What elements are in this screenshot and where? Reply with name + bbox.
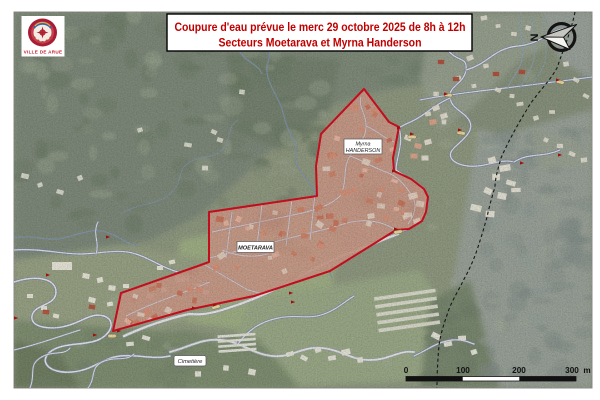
svg-text:MOETARAVA: MOETARAVA (238, 245, 273, 251)
svg-text:HANDERSON: HANDERSON (346, 148, 381, 154)
svg-text:Coupure d'eau prévue le merc 2: Coupure d'eau prévue le merc 29 octobre … (175, 20, 466, 34)
svg-text:0: 0 (404, 366, 409, 375)
svg-text:200: 200 (512, 366, 526, 375)
svg-text:300: 300 (565, 366, 579, 375)
svg-text:Cimetière: Cimetière (178, 359, 204, 365)
svg-text:Secteurs Moetarava et Myrna Ha: Secteurs Moetarava et Myrna Handerson (219, 36, 422, 50)
svg-text:N: N (529, 33, 541, 41)
svg-text:VILLE DE ARUE: VILLE DE ARUE (24, 50, 63, 55)
svg-text:Myrna: Myrna (356, 142, 371, 148)
svg-text:m: m (583, 366, 590, 375)
svg-text:100: 100 (456, 366, 470, 375)
